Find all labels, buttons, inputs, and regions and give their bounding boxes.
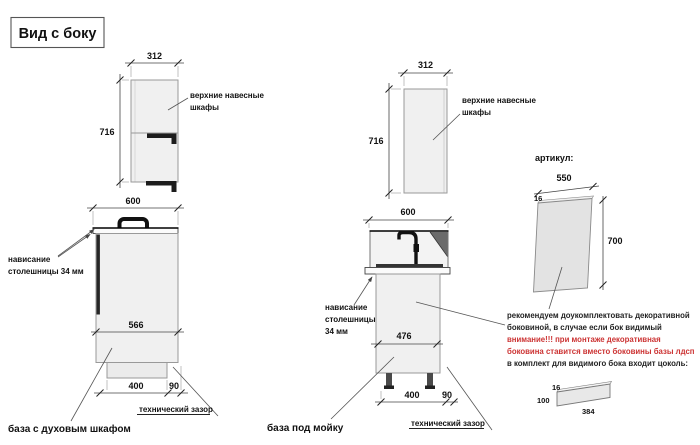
dim-panel-thickness: 16 [534, 194, 542, 203]
drawing-canvas: Вид с боку 312 716 [0, 0, 700, 445]
note-line-warning: боковина ставится вместо боковины базы л… [507, 347, 695, 356]
leg-foot [384, 386, 394, 390]
dim-value: 90 [442, 390, 452, 400]
note-line-warning: внимание!!! при монтаже декоративная [507, 335, 661, 344]
sink-overhang-label: нависание столешницы 34 мм [325, 277, 376, 336]
dim-value: 600 [125, 196, 140, 206]
side-panel-section: артикул: 550 16 700 рекомендуем доукомпл… [507, 153, 695, 416]
label-line: верхние навесные [190, 91, 264, 100]
dim-panel-height: 700 [600, 196, 623, 290]
label-line: шкафы [190, 103, 219, 112]
title-box: Вид с боку [11, 18, 104, 48]
label-line: технический зазор [411, 419, 485, 428]
cabinet-body [376, 274, 440, 373]
technical-drawing: Вид с боку 312 716 [0, 0, 700, 445]
handle [120, 219, 148, 228]
label-line: столешницы 34 мм [8, 267, 84, 276]
dim-oven-upper-width: 312 [125, 51, 184, 77]
sink-unit-name: база под мойку [267, 357, 394, 434]
note-line: боковиной, в случае если бок видимый [507, 323, 662, 332]
dim-plinth-thickness: 16 [552, 383, 560, 392]
oven-upper-label: верхние навесные шкафы [168, 91, 264, 112]
oven-base-cabinet [93, 219, 179, 378]
label-line: нависание [325, 303, 368, 312]
plinth-board: 16 100 384 [537, 382, 612, 417]
dim-value: 700 [607, 236, 622, 246]
dim-value: 400 [128, 381, 143, 391]
side-edge-strip [97, 235, 100, 315]
dim-value: 312 [418, 60, 433, 70]
dim-value: 566 [128, 320, 143, 330]
leg-foot [425, 386, 435, 390]
sink-unit: 312 716 верхние навесные шкафы 600 [267, 60, 536, 434]
sink-bottom-strip [376, 264, 443, 267]
decorative-panel [534, 199, 593, 293]
dim-value: 476 [396, 331, 411, 341]
dim-oven-upper-height: 716 [99, 74, 129, 188]
oven-upper-cabinet [131, 80, 178, 192]
leg-front [386, 373, 392, 386]
oven-overhang-label: нависание столешницы 34 мм [8, 230, 94, 277]
hood-bracket-bottom [146, 181, 177, 192]
label-line: нависание [8, 255, 51, 264]
label-line: шкафы [462, 108, 491, 117]
unit-name: база с духовым шкафом [8, 423, 131, 435]
dim-sink-depth: 600 [363, 207, 454, 228]
upper-cabinet-body [131, 80, 178, 182]
label-line: верхние навесные [462, 96, 536, 105]
leg-back [427, 373, 433, 386]
faucet-handle [414, 244, 420, 252]
countertop [93, 228, 178, 234]
dim-value: 550 [556, 173, 571, 183]
countertop [365, 268, 450, 275]
sink-upper-label: верхние навесные шкафы [433, 96, 536, 140]
plinth-base [107, 363, 167, 379]
dim-value: 312 [147, 51, 162, 61]
artikul-heading: артикул: [535, 153, 573, 163]
note-line: в комплект для видимого бока входит цоко… [507, 359, 688, 368]
cabinet-body [96, 234, 178, 363]
label-line: столешницы [325, 315, 376, 324]
upper-cabinet-body [404, 89, 447, 193]
dim-value: 716 [368, 136, 383, 146]
page-title: Вид с боку [19, 26, 97, 42]
oven-unit: 312 716 верхние навесные шкафы 600 [8, 51, 264, 435]
dim-sink-upper-width: 312 [398, 60, 453, 86]
sink-upper-cabinet [404, 89, 447, 193]
dim-plinth-height: 100 [537, 396, 550, 405]
note-line: рекомендуем доукомплектовать декоративно… [507, 311, 690, 320]
label-line: технический зазор [139, 405, 213, 414]
label-line: 34 мм [325, 327, 348, 336]
dim-value: 600 [400, 207, 415, 217]
dim-sink-upper-height: 716 [368, 83, 401, 199]
sink-base-cabinet [365, 231, 450, 389]
dim-sink-plinth: 400 90 [375, 390, 458, 406]
panel-note: рекомендуем доукомплектовать декоративно… [507, 311, 695, 368]
dim-value: 90 [169, 381, 179, 391]
dim-value: 716 [99, 127, 114, 137]
unit-name: база под мойку [267, 422, 344, 434]
dim-panel-width: 550 [534, 173, 599, 197]
dim-value: 400 [404, 390, 419, 400]
dim-plinth-length: 384 [582, 407, 595, 416]
